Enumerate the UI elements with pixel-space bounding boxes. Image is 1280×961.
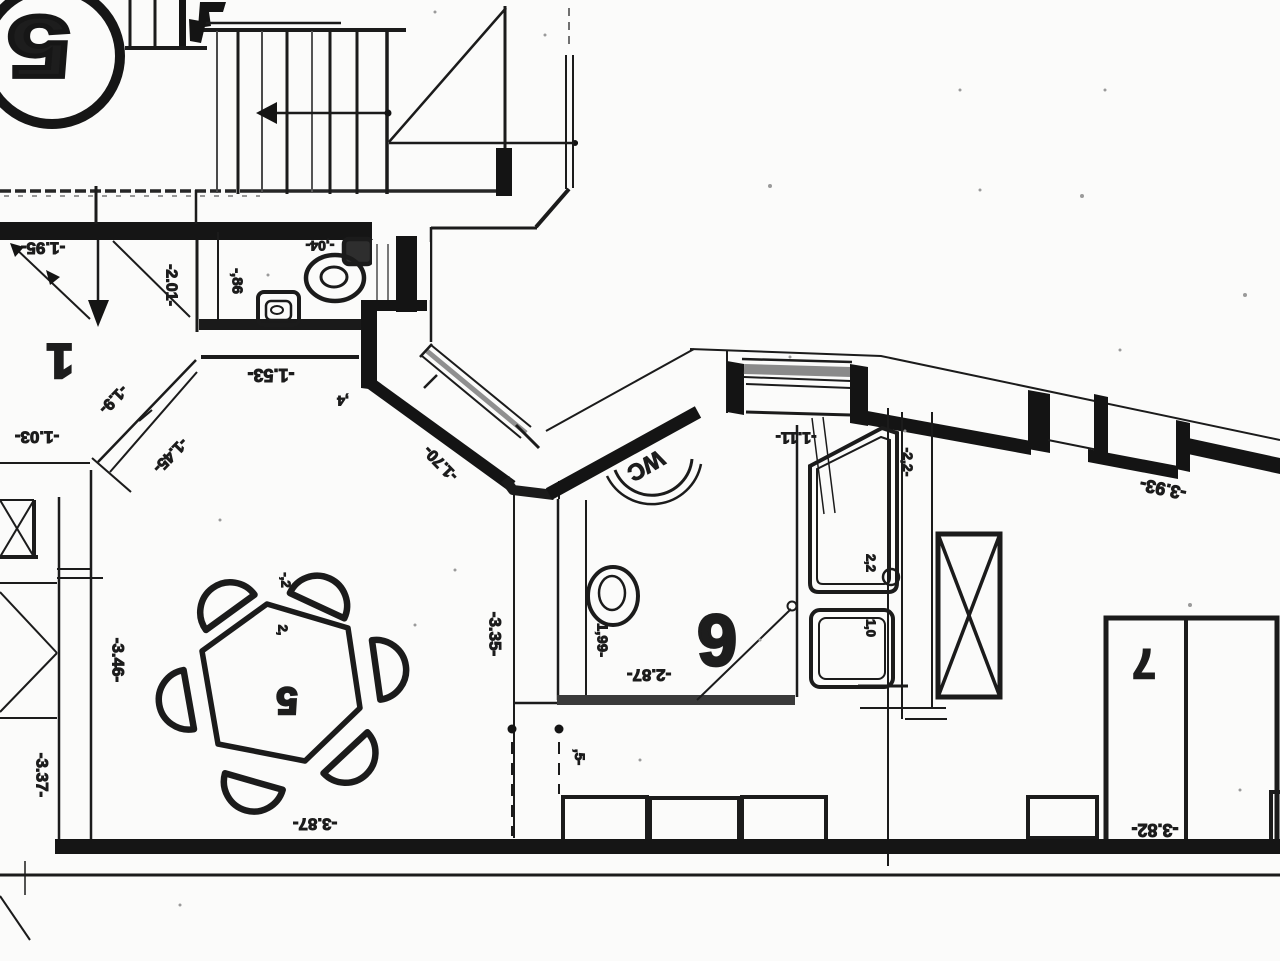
svg-text:7: 7	[1132, 641, 1155, 688]
svg-text:-1.95-: -1.95-	[21, 239, 65, 258]
svg-text:1,0: 1,0	[864, 619, 879, 637]
svg-text:2,2: 2,2	[864, 554, 879, 572]
svg-text:-3.87-: -3.87-	[293, 815, 337, 834]
svg-text:-,04-: -,04-	[305, 238, 334, 254]
svg-text:5: 5	[276, 679, 297, 721]
svg-text:2,: 2,	[276, 625, 291, 636]
svg-text:1: 1	[47, 334, 74, 387]
svg-text:-2.01-: -2.01-	[163, 264, 180, 306]
svg-text:-2.87-: -2.87-	[627, 666, 671, 685]
svg-text:,4: ,4	[337, 393, 349, 409]
svg-text:-3.37-: -3.37-	[33, 753, 52, 797]
svg-text:-3.35-: -3.35-	[486, 612, 505, 656]
svg-text:-,86: -,86	[229, 268, 246, 294]
svg-text:1,99-: 1,99-	[594, 623, 611, 657]
svg-text:-1.03-: -1.03-	[15, 428, 59, 447]
svg-text:-1.53-: -1.53-	[247, 365, 294, 385]
svg-text:-3.82-: -3.82-	[1131, 820, 1178, 840]
svg-text:5: 5	[8, 0, 70, 94]
svg-text:,5-: ,5-	[572, 749, 588, 766]
svg-text:-3.46-: -3.46-	[109, 638, 128, 682]
